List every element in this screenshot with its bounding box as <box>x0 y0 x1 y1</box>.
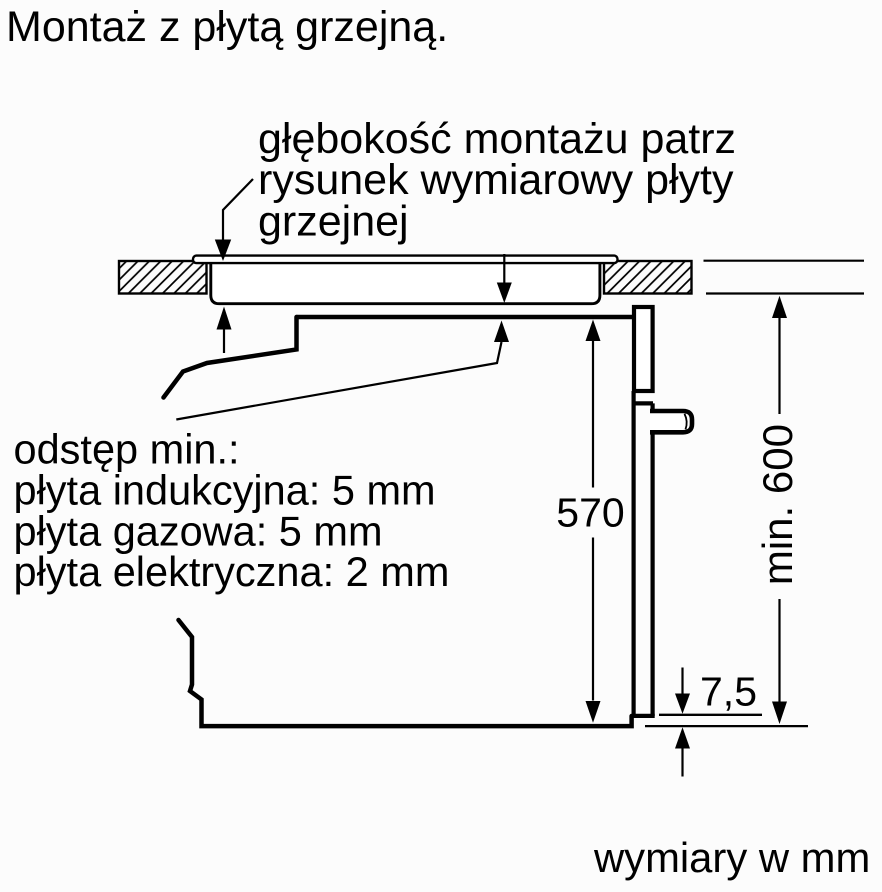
svg-text:min. 600: min. 600 <box>754 424 801 585</box>
svg-text:wymiary w mm: wymiary w mm <box>593 834 870 881</box>
svg-text:Montaż z płytą grzejną.: Montaż z płytą grzejną. <box>6 3 448 51</box>
svg-text:7,5: 7,5 <box>700 669 757 715</box>
svg-text:grzejnej: grzejnej <box>258 198 409 246</box>
svg-text:płyta elektryczna: 2 mm: płyta elektryczna: 2 mm <box>14 548 450 595</box>
svg-text:570: 570 <box>556 490 624 536</box>
